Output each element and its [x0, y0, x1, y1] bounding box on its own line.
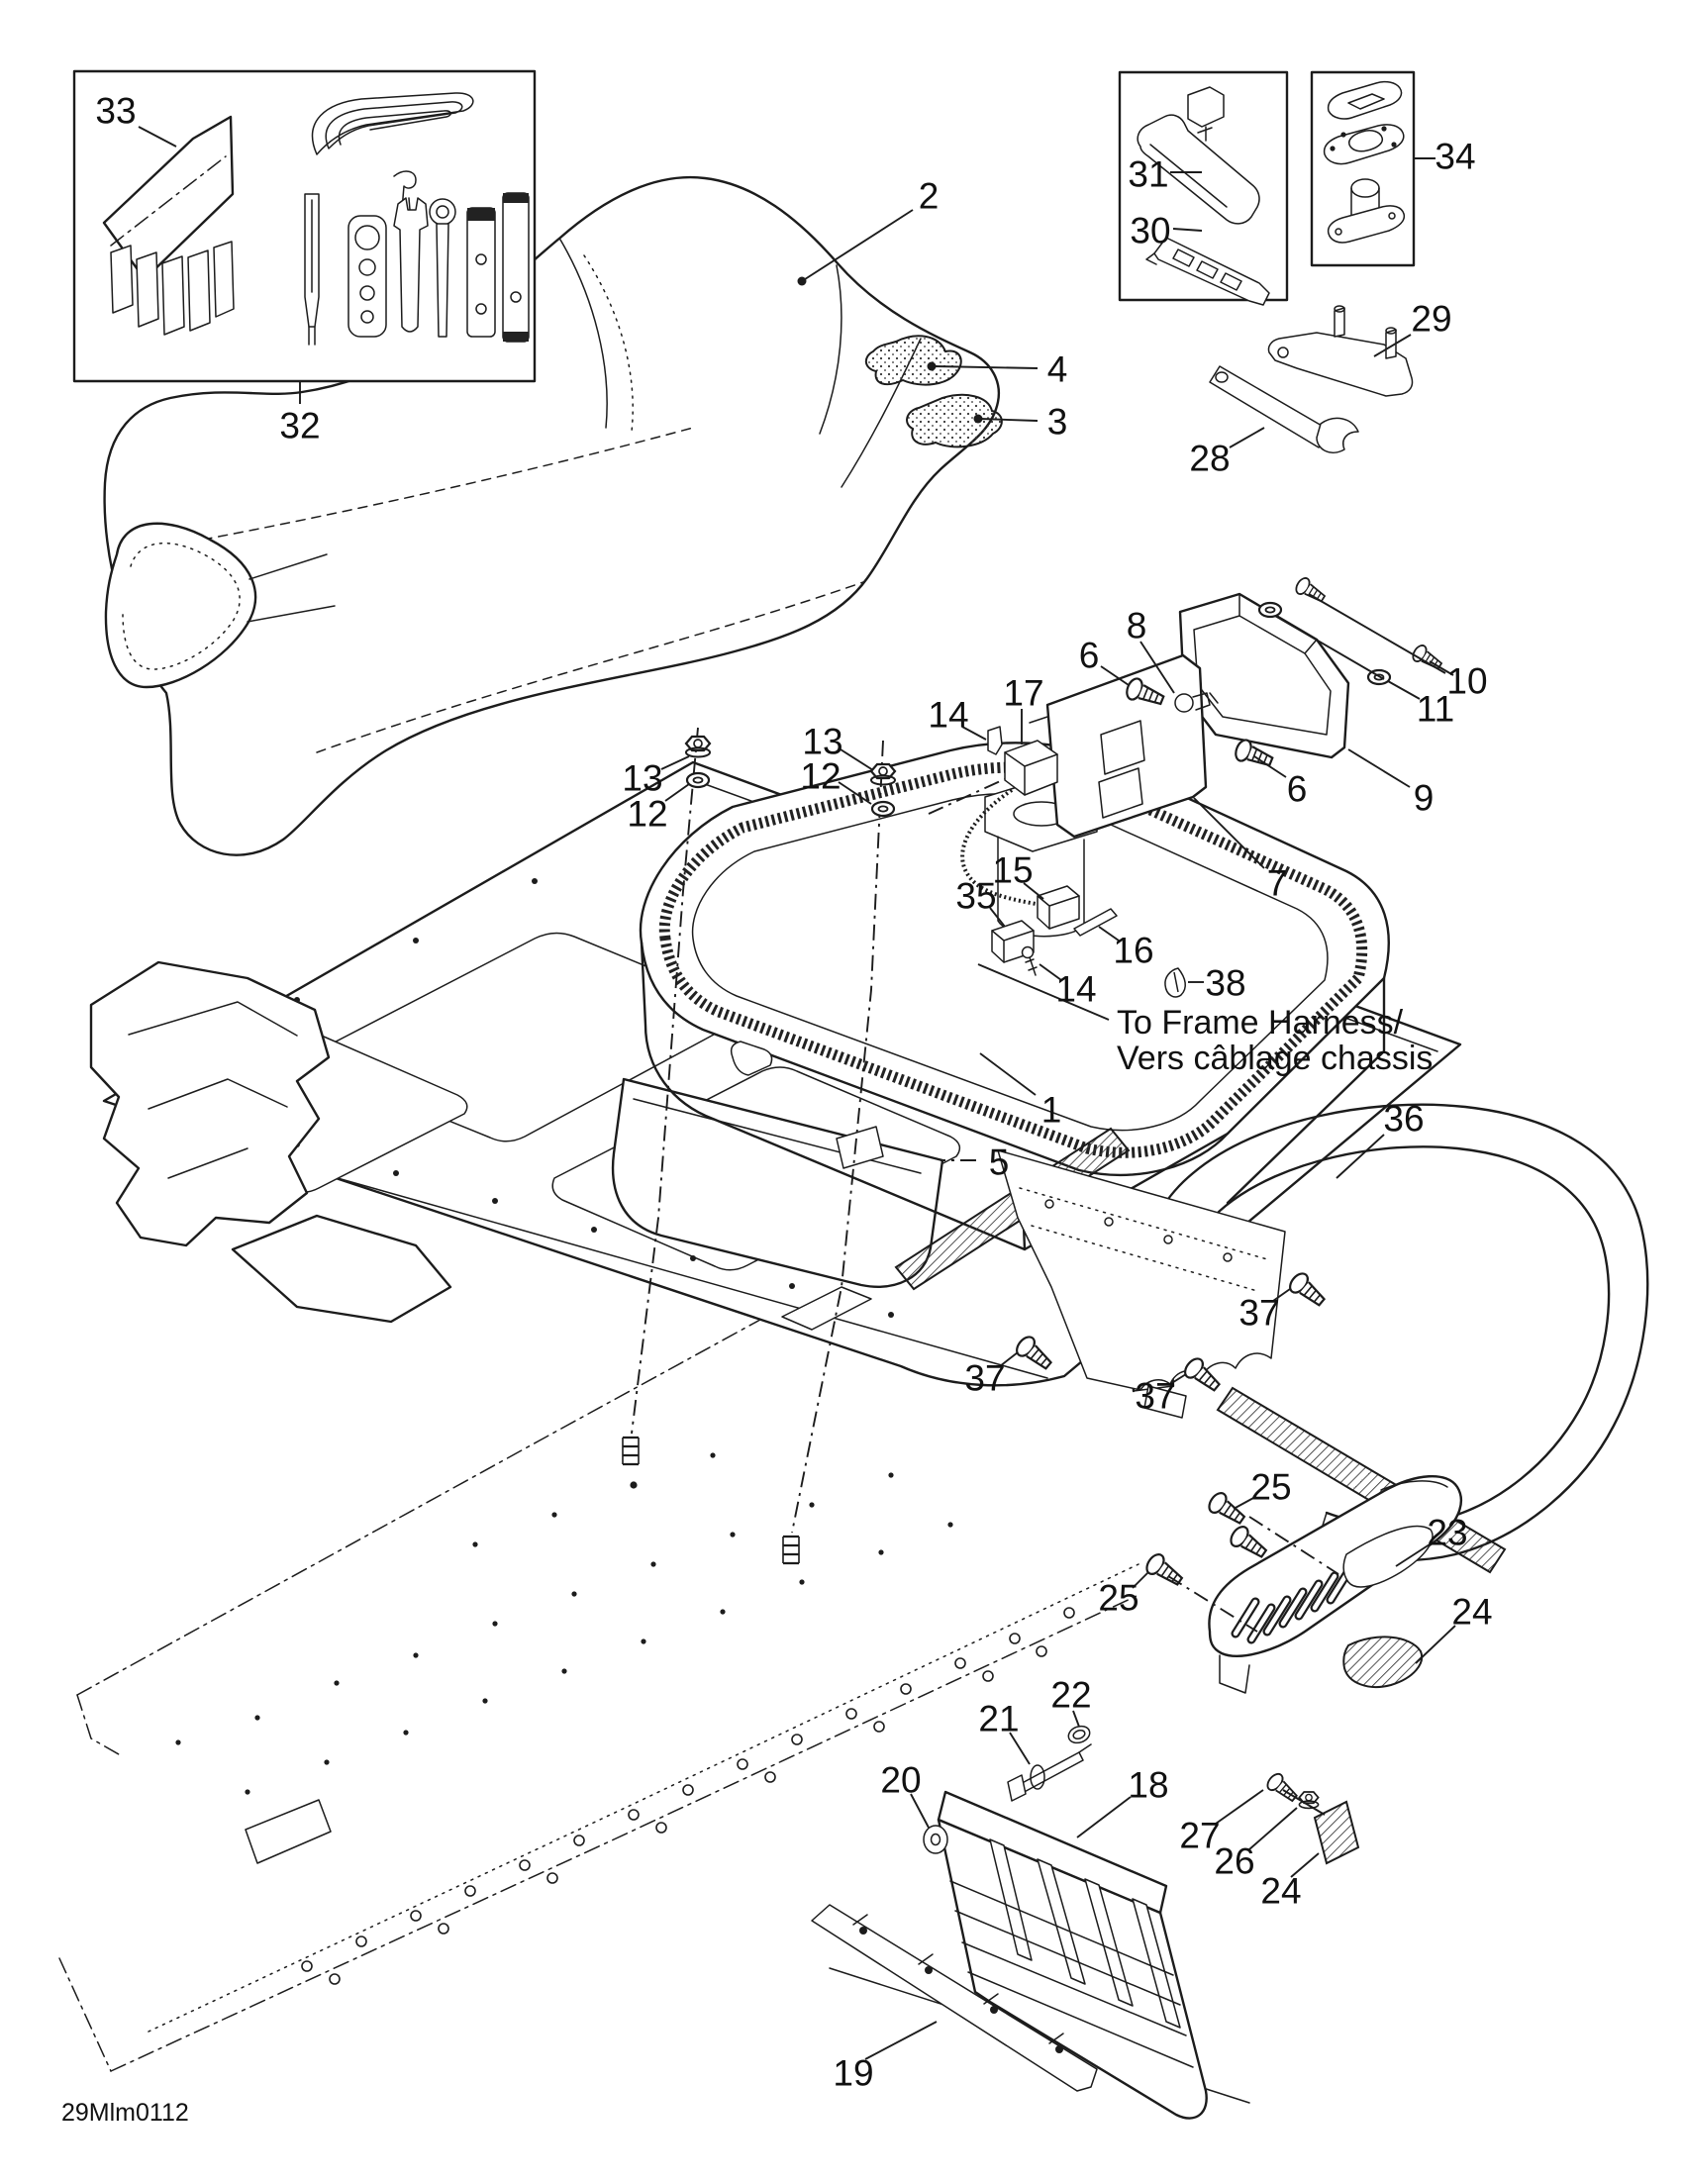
- callout-1: 1: [1041, 1090, 1062, 1131]
- extension-bar-tool: [467, 208, 495, 337]
- stud-spring-right: [783, 1537, 799, 1563]
- socket-strip-tool: [348, 216, 386, 337]
- callout-6-upper: 6: [1079, 636, 1100, 676]
- callout-28: 28: [1189, 439, 1230, 479]
- callout-11: 11: [1417, 689, 1454, 730]
- screw-25b: [1228, 1524, 1270, 1562]
- callout-25-top: 25: [1250, 1467, 1291, 1508]
- stud-spring-left: [623, 1438, 639, 1464]
- callout-14-lower: 14: [1055, 969, 1096, 1010]
- callout-9: 9: [1414, 778, 1435, 819]
- callout-37c: 37: [1135, 1376, 1175, 1417]
- callout-5: 5: [989, 1142, 1010, 1183]
- washer-20: [924, 1826, 947, 1853]
- callout-19: 19: [833, 2053, 873, 2094]
- exploded-view-drawing: 33 32 2 4 3 31 30 34 29 28 6 8 10 11 9 6…: [0, 0, 1683, 2184]
- washer-11a: [1259, 603, 1281, 617]
- callout-23: 23: [1427, 1513, 1467, 1553]
- screw-25c: [1143, 1551, 1186, 1590]
- spanner-28: [1210, 366, 1683, 546]
- callout-36: 36: [1383, 1099, 1424, 1140]
- callout-20: 20: [880, 1760, 921, 1801]
- side-console: [1143, 1476, 1461, 1693]
- screw-25a: [1206, 1490, 1248, 1529]
- taillight-assembly: [1030, 576, 1445, 837]
- o-ring-22: [1066, 1724, 1092, 1746]
- callout-37b: 37: [964, 1358, 1005, 1399]
- callout-13-left: 13: [622, 758, 662, 799]
- taillight-lens: [1180, 594, 1348, 757]
- toolkit-box: [74, 71, 535, 381]
- screw-37a: [1287, 1270, 1329, 1311]
- callout-7: 7: [1267, 863, 1288, 904]
- callout-12-right: 12: [800, 756, 841, 797]
- page-code: 29Mlm0112: [61, 2099, 189, 2127]
- callout-30: 30: [1130, 211, 1170, 251]
- callout-15: 15: [992, 850, 1033, 891]
- callout-18: 18: [1128, 1765, 1168, 1806]
- callout-25-left: 25: [1098, 1578, 1138, 1619]
- callout-26: 26: [1214, 1841, 1254, 1882]
- latch-plate-box: [1312, 72, 1414, 265]
- running-board-holes: [302, 1608, 1074, 1984]
- callout-37a: 37: [1238, 1293, 1279, 1334]
- callout-8: 8: [1127, 606, 1147, 646]
- bracket-29: [1268, 306, 1412, 396]
- callout-24b: 24: [1260, 1871, 1301, 1912]
- callout-16: 16: [1113, 931, 1153, 971]
- callout-6-lower: 6: [1287, 769, 1308, 810]
- plug-socket-tool: [503, 193, 529, 342]
- reflector-24a: [1343, 1637, 1422, 1687]
- parts-diagram-page: 33 32 2 4 3 31 30 34 29 28 6 8 10 11 9 6…: [0, 0, 1683, 2184]
- harness-note-line2: Vers câblage chassis: [1117, 1040, 1433, 1077]
- callout-17: 17: [1003, 673, 1043, 714]
- callout-22: 22: [1050, 1675, 1091, 1716]
- screw-27: [1264, 1771, 1300, 1806]
- callout-32: 32: [279, 406, 320, 447]
- tunnel-rivet-dots: [175, 1452, 952, 1794]
- callout-2: 2: [919, 176, 940, 217]
- callout-31: 31: [1128, 154, 1168, 195]
- callout-14-upper: 14: [928, 695, 968, 736]
- callout-29: 29: [1411, 299, 1451, 340]
- hinge-pin-21: [1008, 1744, 1091, 1801]
- callout-34: 34: [1435, 137, 1475, 177]
- callout-35: 35: [955, 876, 996, 917]
- callout-4: 4: [1047, 349, 1068, 390]
- harness-note-line1: To Frame Harness/: [1117, 1004, 1404, 1042]
- callout-21: 21: [978, 1699, 1019, 1739]
- callout-12-left: 12: [627, 794, 667, 835]
- reflector-24b: [1315, 1802, 1358, 1863]
- callout-3: 3: [1047, 402, 1068, 443]
- callout-24a: 24: [1451, 1592, 1492, 1633]
- callout-38: 38: [1205, 963, 1245, 1004]
- callout-33: 33: [95, 91, 136, 132]
